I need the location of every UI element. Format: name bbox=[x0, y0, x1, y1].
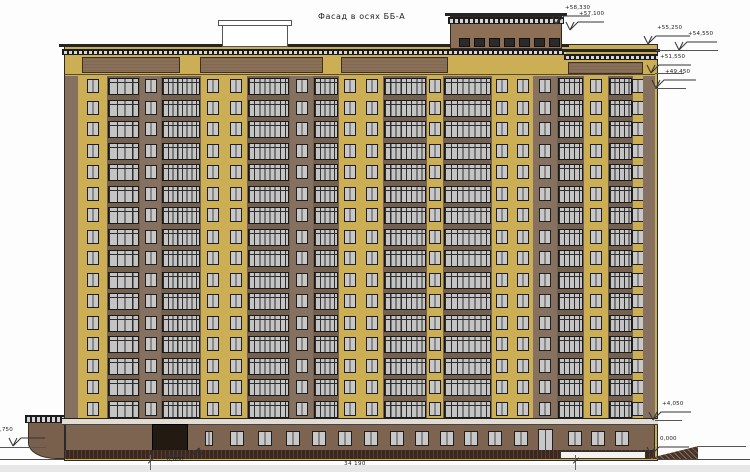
glazed-door bbox=[538, 429, 553, 452]
window bbox=[344, 251, 356, 265]
window bbox=[207, 165, 219, 179]
window bbox=[517, 122, 529, 136]
window bbox=[496, 187, 508, 201]
elevation-value: 0,000 bbox=[660, 436, 677, 442]
balcony-glazing bbox=[558, 164, 583, 181]
bay-w1 bbox=[290, 76, 313, 420]
window bbox=[230, 101, 242, 115]
bay-w1 bbox=[140, 76, 161, 420]
balcony-glazing bbox=[162, 207, 200, 224]
window bbox=[366, 316, 378, 330]
window bbox=[145, 208, 157, 222]
balcony-glazing bbox=[384, 164, 426, 181]
leader-line bbox=[655, 420, 682, 421]
balcony-glazing bbox=[108, 401, 139, 418]
window bbox=[590, 101, 602, 115]
balcony-glazing bbox=[444, 186, 491, 203]
window bbox=[145, 337, 157, 351]
balcony-glazing bbox=[248, 143, 289, 160]
balcony-glazing bbox=[314, 272, 338, 289]
storefront-window bbox=[568, 431, 582, 446]
window bbox=[517, 359, 529, 373]
balcony-glazing bbox=[314, 78, 338, 95]
window bbox=[517, 316, 529, 330]
window bbox=[296, 122, 308, 136]
bay-bal bbox=[608, 76, 633, 420]
balcony-glazing bbox=[384, 272, 426, 289]
window bbox=[366, 402, 378, 416]
balcony-glazing bbox=[248, 78, 289, 95]
window bbox=[207, 101, 219, 115]
dimension-ext-line bbox=[150, 455, 151, 470]
elevation-value: 0,000 bbox=[167, 457, 184, 463]
storefront-window bbox=[440, 431, 454, 446]
window bbox=[590, 230, 602, 244]
balcony-glazing bbox=[108, 121, 139, 138]
balcony-glazing bbox=[558, 379, 583, 396]
attic-panel bbox=[82, 57, 180, 73]
window bbox=[429, 79, 441, 93]
window bbox=[590, 359, 602, 373]
window bbox=[207, 380, 219, 394]
balcony-glazing bbox=[108, 78, 139, 95]
window bbox=[296, 165, 308, 179]
bay-w2 bbox=[201, 76, 247, 420]
balcony-glazing bbox=[162, 164, 200, 181]
penthouse-cap bbox=[445, 13, 567, 16]
window bbox=[429, 144, 441, 158]
total-dimension-label: 34 190 bbox=[310, 461, 400, 467]
facade-grid bbox=[65, 76, 655, 420]
balcony-glazing bbox=[609, 78, 632, 95]
elevation-value: +54,550 bbox=[688, 31, 713, 37]
window bbox=[590, 187, 602, 201]
window bbox=[207, 144, 219, 158]
window bbox=[344, 359, 356, 373]
window bbox=[207, 402, 219, 416]
balcony-glazing bbox=[108, 100, 139, 117]
balcony-glazing bbox=[248, 250, 289, 267]
balcony-glazing bbox=[609, 293, 632, 310]
bay-bal bbox=[107, 76, 140, 420]
balcony-glazing bbox=[314, 143, 338, 160]
elevation-mark: +4,050 bbox=[648, 403, 698, 421]
balcony-glazing bbox=[609, 121, 632, 138]
balcony-glazing bbox=[108, 143, 139, 160]
elevation-mark: +57,100 bbox=[565, 13, 611, 31]
window bbox=[207, 337, 219, 351]
elevation-value: +51,550 bbox=[660, 54, 685, 60]
balcony-glazing bbox=[314, 121, 338, 138]
penthouse-vent-window bbox=[474, 38, 485, 47]
window bbox=[517, 187, 529, 201]
balcony-glazing bbox=[384, 315, 426, 332]
storefront-window bbox=[415, 431, 429, 446]
window bbox=[207, 273, 219, 287]
roof-vent-outline bbox=[222, 24, 288, 47]
balcony-glazing bbox=[444, 272, 491, 289]
window bbox=[429, 294, 441, 308]
window bbox=[366, 208, 378, 222]
balcony-glazing bbox=[558, 143, 583, 160]
balcony-glazing bbox=[384, 78, 426, 95]
window bbox=[230, 402, 242, 416]
balcony-glazing bbox=[609, 100, 632, 117]
balcony-glazing bbox=[248, 358, 289, 375]
balcony-glazing bbox=[558, 78, 583, 95]
balcony-glazing bbox=[248, 121, 289, 138]
balcony-glazing bbox=[162, 315, 200, 332]
window bbox=[590, 273, 602, 287]
bay-w1 bbox=[427, 76, 443, 420]
balcony-glazing bbox=[248, 336, 289, 353]
window bbox=[539, 337, 551, 351]
window bbox=[296, 208, 308, 222]
window bbox=[366, 359, 378, 373]
window bbox=[366, 230, 378, 244]
storefront-window bbox=[464, 431, 478, 446]
window bbox=[539, 251, 551, 265]
storefront-window bbox=[615, 431, 629, 446]
window bbox=[517, 294, 529, 308]
window bbox=[207, 208, 219, 222]
window bbox=[344, 402, 356, 416]
elevation-value: +57,100 bbox=[579, 11, 604, 17]
balcony-glazing bbox=[314, 358, 338, 375]
balcony-glazing bbox=[314, 379, 338, 396]
window bbox=[539, 122, 551, 136]
balcony-glazing bbox=[609, 143, 632, 160]
window bbox=[590, 122, 602, 136]
window bbox=[429, 165, 441, 179]
bay-w2 bbox=[339, 76, 383, 420]
window bbox=[344, 294, 356, 308]
balcony-glazing bbox=[444, 121, 491, 138]
window bbox=[230, 316, 242, 330]
window bbox=[429, 337, 441, 351]
balcony-glazing bbox=[248, 315, 289, 332]
window bbox=[539, 359, 551, 373]
balcony-glazing bbox=[314, 100, 338, 117]
ramp bbox=[560, 451, 646, 459]
attic-panel bbox=[568, 62, 643, 74]
window bbox=[296, 402, 308, 416]
window bbox=[296, 273, 308, 287]
window bbox=[429, 273, 441, 287]
window bbox=[496, 294, 508, 308]
window bbox=[344, 187, 356, 201]
balcony-glazing bbox=[162, 186, 200, 203]
balcony-glazing bbox=[558, 401, 583, 418]
window bbox=[366, 79, 378, 93]
window bbox=[207, 187, 219, 201]
window bbox=[87, 359, 99, 373]
facade-drawing: +58,330+57,100+55,250+54,550+51,550+49,4… bbox=[0, 0, 750, 472]
leader-line bbox=[698, 446, 746, 447]
balcony-glazing bbox=[314, 336, 338, 353]
window bbox=[230, 251, 242, 265]
window bbox=[230, 359, 242, 373]
balcony-glazing bbox=[108, 336, 139, 353]
window bbox=[296, 79, 308, 93]
window bbox=[344, 230, 356, 244]
window bbox=[366, 101, 378, 115]
storefront-window bbox=[514, 431, 528, 446]
window bbox=[145, 402, 157, 416]
window bbox=[429, 359, 441, 373]
window bbox=[87, 79, 99, 93]
elevation-mark: 0,000 bbox=[646, 438, 696, 456]
window bbox=[87, 337, 99, 351]
balcony-glazing bbox=[162, 250, 200, 267]
attic-panel bbox=[200, 57, 323, 73]
window bbox=[496, 144, 508, 158]
window bbox=[145, 294, 157, 308]
window bbox=[429, 380, 441, 394]
bay-w1 bbox=[533, 76, 557, 420]
balcony-glazing bbox=[558, 315, 583, 332]
window bbox=[207, 230, 219, 244]
balcony-glazing bbox=[314, 186, 338, 203]
window bbox=[207, 359, 219, 373]
window bbox=[145, 273, 157, 287]
window bbox=[429, 316, 441, 330]
balcony-glazing bbox=[162, 78, 200, 95]
window bbox=[539, 165, 551, 179]
window bbox=[296, 294, 308, 308]
leader-line bbox=[656, 50, 718, 51]
window bbox=[590, 208, 602, 222]
window bbox=[87, 380, 99, 394]
storefront-window bbox=[312, 431, 326, 446]
drawing-sheet: Фасад в осях ББ-А +58,330+57,100+55,250+… bbox=[0, 0, 750, 472]
window bbox=[366, 165, 378, 179]
balcony-glazing bbox=[314, 401, 338, 418]
balcony-glazing bbox=[384, 358, 426, 375]
balcony-glazing bbox=[314, 250, 338, 267]
bay-bal bbox=[247, 76, 290, 420]
balcony-glazing bbox=[248, 164, 289, 181]
window bbox=[496, 316, 508, 330]
window bbox=[145, 316, 157, 330]
window bbox=[344, 122, 356, 136]
window bbox=[145, 101, 157, 115]
balcony-glazing bbox=[162, 100, 200, 117]
bay-bal bbox=[557, 76, 584, 420]
balcony-glazing bbox=[558, 121, 583, 138]
balcony-glazing bbox=[162, 143, 200, 160]
bay-bal bbox=[443, 76, 492, 420]
balcony-glazing bbox=[314, 164, 338, 181]
window bbox=[230, 144, 242, 158]
elevation-value: +55,250 bbox=[657, 25, 682, 31]
window bbox=[207, 294, 219, 308]
balcony-glazing bbox=[248, 293, 289, 310]
window bbox=[366, 122, 378, 136]
window bbox=[590, 79, 602, 93]
window bbox=[496, 337, 508, 351]
window bbox=[230, 337, 242, 351]
window bbox=[429, 208, 441, 222]
balcony-glazing bbox=[384, 401, 426, 418]
balcony-glazing bbox=[162, 401, 200, 418]
balcony-glazing bbox=[444, 164, 491, 181]
window bbox=[366, 380, 378, 394]
window bbox=[230, 165, 242, 179]
balcony-glazing bbox=[558, 100, 583, 117]
window bbox=[496, 273, 508, 287]
balcony-glazing bbox=[444, 315, 491, 332]
window bbox=[590, 144, 602, 158]
window bbox=[496, 101, 508, 115]
balcony-glazing bbox=[444, 293, 491, 310]
balcony-glazing bbox=[384, 207, 426, 224]
balcony-glazing bbox=[444, 78, 491, 95]
bay-pier bbox=[65, 76, 78, 420]
window bbox=[87, 273, 99, 287]
window bbox=[296, 359, 308, 373]
window bbox=[429, 230, 441, 244]
storefront-window bbox=[230, 431, 244, 446]
window bbox=[517, 79, 529, 93]
window bbox=[366, 273, 378, 287]
window bbox=[230, 122, 242, 136]
penthouse-vent-window bbox=[459, 38, 470, 47]
leader-line bbox=[655, 73, 684, 74]
window bbox=[517, 230, 529, 244]
dentil-cornice bbox=[62, 49, 566, 55]
balcony-glazing bbox=[162, 229, 200, 246]
balcony-glazing bbox=[444, 100, 491, 117]
window bbox=[539, 402, 551, 416]
elevation-value: +49,450 bbox=[665, 69, 690, 75]
bay-bal bbox=[383, 76, 427, 420]
storefront-window bbox=[390, 431, 404, 446]
balcony-glazing bbox=[314, 229, 338, 246]
balcony-glazing bbox=[162, 336, 200, 353]
window bbox=[590, 165, 602, 179]
window bbox=[230, 79, 242, 93]
window bbox=[145, 122, 157, 136]
window bbox=[207, 316, 219, 330]
window bbox=[539, 101, 551, 115]
window bbox=[539, 380, 551, 394]
balcony-glazing bbox=[609, 401, 632, 418]
balcony-glazing bbox=[314, 315, 338, 332]
window bbox=[366, 251, 378, 265]
balcony-glazing bbox=[248, 229, 289, 246]
window bbox=[517, 208, 529, 222]
balcony-glazing bbox=[162, 358, 200, 375]
balcony-glazing bbox=[444, 401, 491, 418]
window bbox=[87, 187, 99, 201]
storefront-window bbox=[286, 431, 300, 446]
window bbox=[590, 316, 602, 330]
balcony-glazing bbox=[384, 121, 426, 138]
window bbox=[230, 273, 242, 287]
balcony-glazing bbox=[108, 293, 139, 310]
attic-panel bbox=[341, 57, 448, 73]
window bbox=[296, 230, 308, 244]
balcony-glazing bbox=[609, 358, 632, 375]
window bbox=[145, 165, 157, 179]
window bbox=[87, 251, 99, 265]
leader-line bbox=[0, 447, 46, 448]
balcony-glazing bbox=[609, 379, 632, 396]
window bbox=[429, 101, 441, 115]
window bbox=[296, 101, 308, 115]
balcony-glazing bbox=[558, 293, 583, 310]
elevation-value: +4,050 bbox=[662, 401, 684, 407]
window bbox=[496, 165, 508, 179]
window bbox=[590, 251, 602, 265]
window bbox=[145, 251, 157, 265]
window bbox=[590, 294, 602, 308]
window bbox=[230, 230, 242, 244]
window bbox=[145, 144, 157, 158]
dimension-ext-line bbox=[575, 455, 576, 470]
window bbox=[87, 294, 99, 308]
window bbox=[429, 187, 441, 201]
window bbox=[539, 187, 551, 201]
window bbox=[296, 251, 308, 265]
window bbox=[296, 144, 308, 158]
window bbox=[496, 79, 508, 93]
window bbox=[207, 251, 219, 265]
balcony-glazing bbox=[609, 336, 632, 353]
window bbox=[496, 251, 508, 265]
window bbox=[539, 208, 551, 222]
balcony-glazing bbox=[609, 164, 632, 181]
balcony-glazing bbox=[558, 207, 583, 224]
balcony-glazing bbox=[162, 272, 200, 289]
window bbox=[496, 230, 508, 244]
balcony-glazing bbox=[384, 143, 426, 160]
balcony-glazing bbox=[108, 229, 139, 246]
balcony-glazing bbox=[558, 250, 583, 267]
window bbox=[145, 79, 157, 93]
window bbox=[344, 337, 356, 351]
bay-w1 bbox=[584, 76, 608, 420]
balcony-glazing bbox=[384, 336, 426, 353]
balcony-glazing bbox=[609, 250, 632, 267]
window bbox=[496, 359, 508, 373]
balcony-glazing bbox=[384, 100, 426, 117]
balcony-glazing bbox=[558, 186, 583, 203]
window bbox=[344, 380, 356, 394]
window bbox=[87, 208, 99, 222]
balcony-glazing bbox=[609, 229, 632, 246]
balcony-glazing bbox=[384, 379, 426, 396]
window bbox=[517, 101, 529, 115]
window bbox=[539, 79, 551, 93]
storefront-window bbox=[364, 431, 378, 446]
balcony-glazing bbox=[609, 315, 632, 332]
window bbox=[539, 294, 551, 308]
window bbox=[230, 208, 242, 222]
window bbox=[207, 122, 219, 136]
balcony-glazing bbox=[162, 121, 200, 138]
penthouse-vent-window bbox=[549, 38, 560, 47]
window bbox=[87, 101, 99, 115]
bay-w1 bbox=[78, 76, 107, 420]
window bbox=[344, 101, 356, 115]
window bbox=[344, 144, 356, 158]
balcony-glazing bbox=[444, 336, 491, 353]
window bbox=[590, 380, 602, 394]
window bbox=[296, 337, 308, 351]
balcony-glazing bbox=[444, 379, 491, 396]
